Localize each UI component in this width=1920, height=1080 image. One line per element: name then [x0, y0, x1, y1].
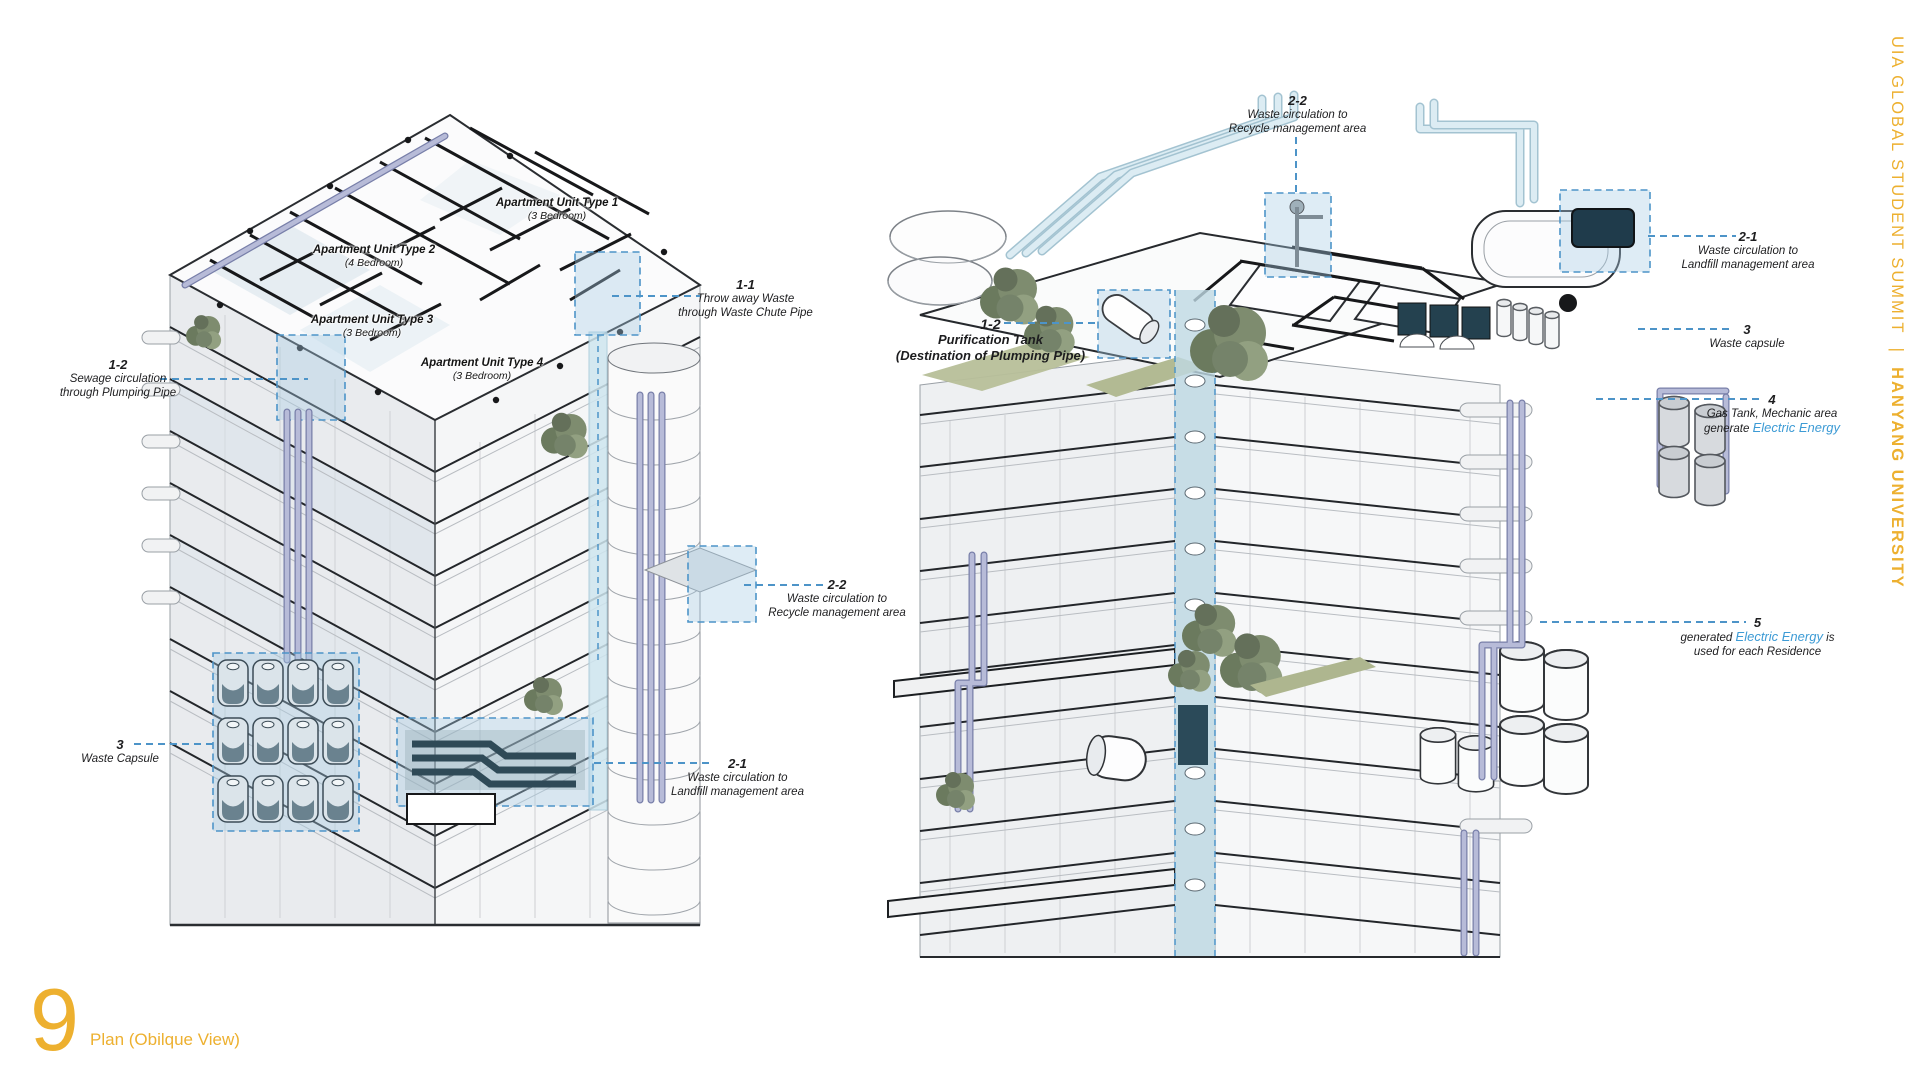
annotation-2-2-left: 2-2 Waste circulation to Recycle managem…: [752, 577, 922, 620]
event-banner: UIA GLOBAL STUDENT SUMMIT | HANYANG UNIV…: [1887, 36, 1906, 589]
landfill-highlight-right: [1472, 190, 1650, 287]
presentation-board: 1-1 Throw away Waste through Waste Chute…: [0, 0, 1920, 1080]
annotation-5-right: 5 generated Electric Energy is used for …: [1650, 615, 1865, 659]
banner-separator: |: [1888, 341, 1906, 367]
recycle-highlight-right: [1265, 193, 1331, 277]
annotation-1-2-right: 1-2 Purification Tank (Destination of Pl…: [878, 316, 1103, 364]
right-building-illustration: [860, 85, 1740, 965]
page-number: 9: [30, 980, 79, 1060]
annotation-1-2-left: 1-2 Sewage circulation through Plumping …: [28, 357, 208, 400]
annotation-1-1: 1-1 Throw away Waste through Waste Chute…: [658, 277, 833, 320]
apartment-label-type2: Apartment Unit Type 2 (4 Bedroom): [289, 244, 459, 269]
banner-university-text: HANYANG UNIVERSITY: [1888, 367, 1906, 589]
annotation-2-1-right: 2-1 Waste circulation to Landfill manage…: [1657, 229, 1839, 272]
annotation-2-2-right: 2-2 Waste circulation to Recycle managem…: [1205, 93, 1390, 136]
banner-summit-text: UIA GLOBAL STUDENT SUMMIT: [1888, 36, 1906, 334]
leader-2-2-right: [1295, 137, 1297, 195]
waste-capsule-rack: [213, 653, 359, 831]
annotation-3-left: 3 Waste Capsule: [40, 737, 200, 766]
left-building-illustration: [140, 100, 760, 930]
annotation-3-right: 3 Waste capsule: [1658, 322, 1836, 351]
apartment-label-type1: Apartment Unit Type 1 (3 Bedroom): [472, 197, 642, 222]
purification-tank-highlight: [1097, 289, 1170, 358]
annotation-4-right: 4 Gas Tank, Mechanic area generate Elect…: [1666, 392, 1878, 436]
electric-energy-highlight: Electric Energy: [1753, 420, 1840, 435]
page-caption: Plan (Obilque View): [90, 1030, 240, 1050]
apartment-label-type3: Apartment Unit Type 3 (3 Bedroom): [287, 314, 457, 339]
annotation-2-1-left: 2-1 Waste circulation to Landfill manage…: [645, 756, 830, 799]
apartment-label-type4: Apartment Unit Type 4 (3 Bedroom): [397, 357, 567, 382]
electric-energy-highlight: Electric Energy: [1736, 629, 1823, 644]
